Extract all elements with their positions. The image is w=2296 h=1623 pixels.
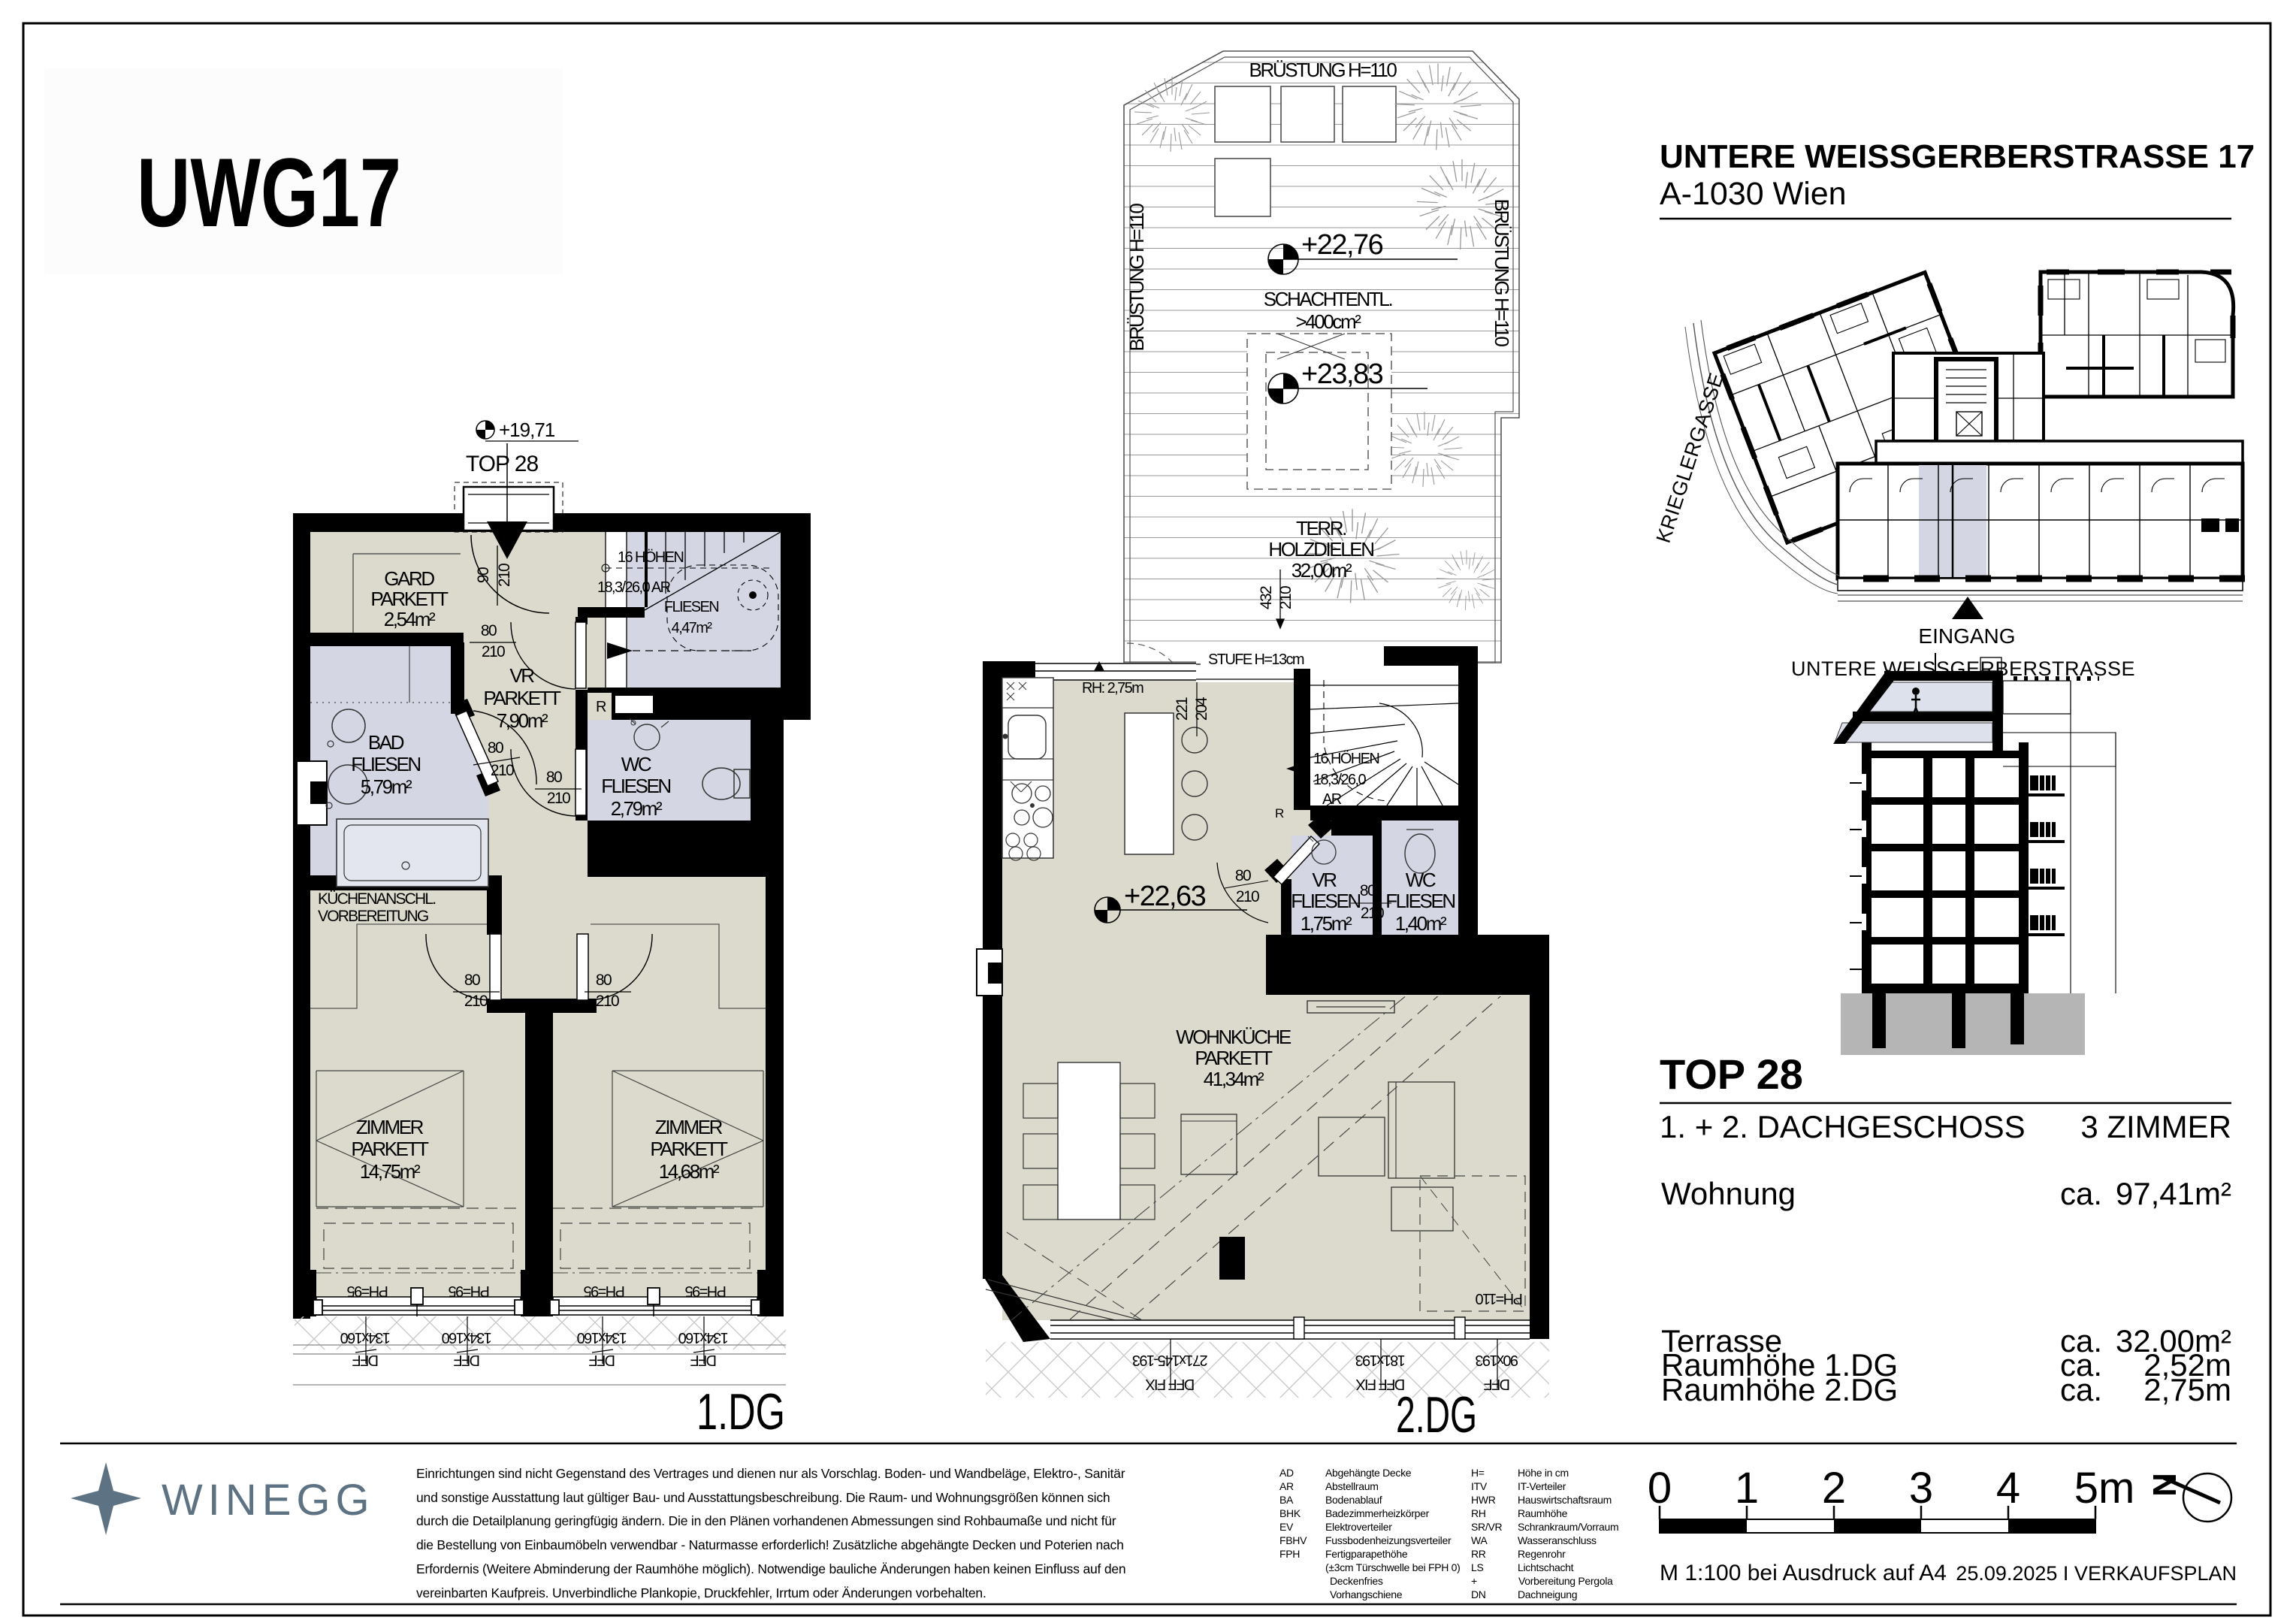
- svg-text:134x160: 134x160: [442, 1329, 492, 1346]
- svg-text:Erfordernis (Weitere Abminderu: Erfordernis (Weitere Abminderung der Rau…: [416, 1561, 1125, 1576]
- svg-text:ZIMMER: ZIMMER: [655, 1116, 723, 1138]
- svg-text:Schrankraum/Vorraum: Schrankraum/Vorraum: [1518, 1521, 1618, 1533]
- svg-text:210: 210: [491, 762, 514, 779]
- svg-text:25.09.2025 I VERKAUFSPLAN: 25.09.2025 I VERKAUFSPLAN: [1956, 1562, 2237, 1585]
- svg-text:WA: WA: [1471, 1534, 1488, 1546]
- svg-text:4: 4: [1996, 1464, 2020, 1513]
- svg-text:SR/VR: SR/VR: [1471, 1521, 1502, 1533]
- svg-text:die Bestellung von Einbaumöbel: die Bestellung von Einbaumöbeln verwendb…: [416, 1537, 1124, 1552]
- svg-text:210: 210: [464, 993, 488, 1010]
- svg-text:>400cm²: >400cm²: [1295, 310, 1361, 333]
- svg-text:PARKETT: PARKETT: [1195, 1047, 1273, 1069]
- svg-text:80: 80: [464, 972, 480, 989]
- svg-text:2: 2: [1822, 1464, 1846, 1513]
- svg-text:+23,83: +23,83: [1301, 358, 1383, 390]
- svg-text:BHK: BHK: [1279, 1507, 1301, 1519]
- svg-text:0: 0: [1648, 1464, 1672, 1513]
- svg-text:FLIESEN: FLIESEN: [1291, 890, 1360, 912]
- svg-text:134x160: 134x160: [340, 1329, 391, 1346]
- svg-text:ZIMMER: ZIMMER: [356, 1116, 424, 1138]
- svg-text:RH: RH: [1471, 1507, 1486, 1519]
- svg-text:BRÜSTUNG H=110: BRÜSTUNG H=110: [1491, 199, 1513, 347]
- svg-text:432: 432: [1258, 586, 1275, 609]
- svg-text:UNTERE WEISSGERBERSTRASSE 17: UNTERE WEISSGERBERSTRASSE 17: [1660, 138, 2255, 175]
- svg-text:5,79m²: 5,79m²: [361, 775, 412, 798]
- svg-text:2,79m²: 2,79m²: [611, 797, 663, 820]
- svg-text:PH=95: PH=95: [449, 1283, 490, 1299]
- svg-text:(±3cm Türschwelle bei FPH 0): (±3cm Türschwelle bei FPH 0): [1325, 1561, 1461, 1573]
- svg-text:Wasseranschluss: Wasseranschluss: [1518, 1534, 1597, 1546]
- svg-text:UWG17: UWG17: [137, 138, 401, 247]
- svg-text:210: 210: [496, 564, 513, 587]
- svg-text:Raumhöhe 2.DG: Raumhöhe 2.DG: [1661, 1372, 1898, 1407]
- svg-text:GARD: GARD: [384, 567, 434, 590]
- svg-text:14,75m²: 14,75m²: [360, 1160, 421, 1183]
- svg-text:EV: EV: [1279, 1521, 1294, 1533]
- svg-text:Hauswirtschaftsraum: Hauswirtschaftsraum: [1518, 1494, 1612, 1506]
- svg-text:ca.: ca.: [2060, 1372, 2102, 1407]
- svg-text:M 1:100 bei Ausdruck auf A4: M 1:100 bei Ausdruck auf A4: [1660, 1561, 1947, 1585]
- svg-text:Raumhöhe: Raumhöhe: [1518, 1507, 1568, 1519]
- svg-text:VR: VR: [1312, 869, 1337, 891]
- svg-text:BRÜSTUNG H=110: BRÜSTUNG H=110: [1249, 59, 1397, 81]
- svg-text:R: R: [1275, 806, 1284, 821]
- svg-text:FPH: FPH: [1279, 1548, 1300, 1560]
- svg-text:210: 210: [482, 643, 505, 660]
- svg-text:DFF: DFF: [454, 1352, 480, 1368]
- svg-text:Abstellraum: Abstellraum: [1325, 1480, 1379, 1492]
- svg-text:271x145-193: 271x145-193: [1132, 1352, 1208, 1368]
- svg-text:1: 1: [1735, 1464, 1759, 1513]
- svg-text:LS: LS: [1471, 1561, 1484, 1573]
- svg-text:Vorbereitung Pergola: Vorbereitung Pergola: [1518, 1575, 1613, 1587]
- svg-text:2,75m: 2,75m: [2143, 1372, 2231, 1407]
- svg-text:14,68m²: 14,68m²: [659, 1160, 720, 1183]
- svg-text:Wohnung: Wohnung: [1661, 1176, 1796, 1211]
- svg-text:90x193: 90x193: [1476, 1352, 1518, 1368]
- svg-text:210: 210: [596, 993, 619, 1010]
- svg-text:210: 210: [547, 790, 570, 807]
- svg-text:SCHACHTENTL.: SCHACHTENTL.: [1264, 288, 1392, 310]
- svg-text:PARKETT: PARKETT: [351, 1138, 429, 1160]
- svg-text:1,75m²: 1,75m²: [1301, 912, 1352, 935]
- svg-text:HOLZDIELEN: HOLZDIELEN: [1268, 538, 1373, 561]
- svg-text:4,47m²: 4,47m²: [672, 620, 713, 636]
- svg-text:Lichtschacht: Lichtschacht: [1518, 1561, 1574, 1573]
- svg-text:VR: VR: [509, 664, 534, 687]
- svg-text:KÜCHENANSCHL.: KÜCHENANSCHL.: [318, 890, 435, 908]
- svg-text:H=: H=: [1471, 1467, 1485, 1479]
- svg-text:STUFE H=13cm: STUFE H=13cm: [1208, 651, 1304, 668]
- svg-text:WOHNKÜCHE: WOHNKÜCHE: [1176, 1026, 1291, 1048]
- svg-text:210: 210: [1236, 888, 1259, 905]
- svg-text:Abgehängte Decke: Abgehängte Decke: [1325, 1467, 1412, 1479]
- svg-text:IT-Verteiler: IT-Verteiler: [1518, 1480, 1566, 1492]
- svg-text:134x160: 134x160: [577, 1329, 627, 1346]
- svg-text:80: 80: [481, 622, 497, 639]
- svg-text:FBHV: FBHV: [1279, 1534, 1307, 1546]
- svg-text:PARKETT: PARKETT: [650, 1138, 728, 1160]
- svg-text:221: 221: [1174, 697, 1191, 721]
- svg-text:PH=110: PH=110: [1476, 1290, 1523, 1307]
- svg-text:Fussbodenheizungsverteiler: Fussbodenheizungsverteiler: [1325, 1534, 1452, 1546]
- svg-text:TOP 28: TOP 28: [466, 452, 539, 476]
- svg-text:DFF FIX: DFF FIX: [1146, 1376, 1195, 1392]
- svg-text:1. + 2. DACHGESCHOSS: 1. + 2. DACHGESCHOSS: [1660, 1109, 2026, 1144]
- svg-text:DN: DN: [1471, 1588, 1486, 1600]
- svg-text:BRÜSTUNG H=110: BRÜSTUNG H=110: [1125, 204, 1148, 352]
- svg-text:N: N: [2146, 1473, 2183, 1497]
- svg-text:41,34m²: 41,34m²: [1204, 1068, 1264, 1090]
- svg-text:RH: 2,75m: RH: 2,75m: [1082, 680, 1143, 697]
- svg-text:vereinbarten Kaufpreis. Unverb: vereinbarten Kaufpreis. Unverbindliche P…: [416, 1585, 986, 1600]
- svg-text:AR: AR: [1322, 791, 1342, 808]
- svg-text:AD: AD: [1279, 1467, 1294, 1479]
- svg-text:FLIESEN: FLIESEN: [601, 775, 670, 797]
- svg-text:97,41m²: 97,41m²: [2116, 1176, 2231, 1211]
- svg-text:WC: WC: [1406, 869, 1436, 891]
- svg-text:FLIESEN: FLIESEN: [664, 599, 718, 615]
- svg-text:1,40m²: 1,40m²: [1395, 912, 1447, 935]
- svg-text:BA: BA: [1279, 1494, 1294, 1506]
- svg-text:WC: WC: [621, 753, 651, 775]
- svg-text:PARKETT: PARKETT: [370, 588, 449, 610]
- svg-text:+: +: [1471, 1575, 1477, 1587]
- svg-text:PH=95: PH=95: [685, 1283, 727, 1299]
- svg-text:134x160: 134x160: [678, 1329, 729, 1346]
- svg-text:Fertigparapethöhe: Fertigparapethöhe: [1325, 1548, 1408, 1560]
- svg-text:HWR: HWR: [1471, 1494, 1496, 1506]
- svg-text:3 ZIMMER: 3 ZIMMER: [2080, 1109, 2231, 1144]
- svg-text:Badezimmerheizkörper: Badezimmerheizkörper: [1325, 1507, 1430, 1519]
- svg-text:204: 204: [1193, 697, 1210, 721]
- svg-text:DFF: DFF: [1484, 1376, 1510, 1392]
- svg-text:Deckenfries: Deckenfries: [1330, 1575, 1383, 1587]
- svg-text:BAD: BAD: [368, 731, 404, 754]
- svg-text:EINGANG: EINGANG: [1918, 624, 2015, 648]
- svg-text:FLIESEN: FLIESEN: [351, 753, 420, 775]
- svg-text:3: 3: [1909, 1464, 1933, 1513]
- svg-text:+22,76: +22,76: [1301, 229, 1383, 261]
- svg-text:80: 80: [1235, 867, 1251, 884]
- svg-text:80: 80: [546, 769, 562, 786]
- svg-text:90: 90: [475, 567, 492, 583]
- svg-text:VORBEREITUNG: VORBEREITUNG: [318, 908, 428, 925]
- svg-text:Bodenablauf: Bodenablauf: [1325, 1494, 1382, 1506]
- svg-text:2,54m²: 2,54m²: [384, 608, 436, 630]
- svg-text:ca.: ca.: [2060, 1176, 2102, 1211]
- svg-text:RR: RR: [1471, 1548, 1486, 1560]
- svg-text:PH=95: PH=95: [347, 1283, 388, 1299]
- svg-text:16 HÖHEN: 16 HÖHEN: [618, 549, 683, 566]
- svg-text:WINEGG: WINEGG: [162, 1476, 375, 1525]
- svg-text:Regenrohr: Regenrohr: [1518, 1548, 1566, 1560]
- svg-text:und sonstige Ausstattung laut: und sonstige Ausstattung laut gültiger B…: [416, 1490, 1110, 1505]
- svg-text:PH=95: PH=95: [584, 1283, 625, 1299]
- svg-text:durch die Detailplanung gering: durch die Detailplanung geringfügig ände…: [416, 1513, 1116, 1528]
- svg-text:80: 80: [488, 739, 503, 757]
- svg-text:Höhe in cm: Höhe in cm: [1518, 1467, 1569, 1479]
- svg-text:TERR.: TERR.: [1296, 517, 1346, 539]
- svg-text:16 HÖHEN: 16 HÖHEN: [1313, 751, 1379, 767]
- svg-text:181x193: 181x193: [1355, 1352, 1406, 1368]
- svg-text:80: 80: [1360, 882, 1376, 899]
- svg-text:5m: 5m: [2074, 1464, 2135, 1513]
- svg-text:32,00m²: 32,00m²: [1291, 559, 1352, 582]
- svg-text:DFF: DFF: [690, 1352, 717, 1368]
- svg-text:Elektroverteiler: Elektroverteiler: [1325, 1521, 1392, 1533]
- svg-text:80: 80: [596, 972, 612, 989]
- svg-text:LÜ: LÜ: [1357, 806, 1372, 821]
- svg-text:R: R: [596, 699, 606, 715]
- svg-text:AR: AR: [1279, 1480, 1294, 1492]
- svg-text:210: 210: [1361, 905, 1384, 922]
- svg-text:Vorhangschiene: Vorhangschiene: [1330, 1588, 1403, 1600]
- svg-text:+22,63: +22,63: [1124, 881, 1206, 912]
- svg-text:1.DG: 1.DG: [696, 1383, 785, 1440]
- svg-text:18,3/26,0: 18,3/26,0: [1313, 772, 1366, 788]
- svg-text:Dachneigung: Dachneigung: [1518, 1588, 1577, 1600]
- svg-text:Einrichtungen sind nicht Gegen: Einrichtungen sind nicht Gegenstand des …: [416, 1466, 1125, 1481]
- svg-text:7,90m²: 7,90m²: [497, 709, 548, 732]
- svg-text:DFF: DFF: [589, 1352, 615, 1368]
- svg-text:PARKETT: PARKETT: [483, 687, 561, 709]
- svg-text:TOP 28: TOP 28: [1660, 1050, 1803, 1098]
- svg-text:A-1030 Wien: A-1030 Wien: [1660, 176, 1847, 212]
- svg-text:DFF: DFF: [352, 1352, 379, 1368]
- svg-text:2.DG: 2.DG: [1396, 1386, 1477, 1443]
- svg-text:+19,71: +19,71: [499, 419, 555, 441]
- svg-text:18,3/26,0 AR: 18,3/26,0 AR: [597, 579, 671, 596]
- svg-text:FLIESEN: FLIESEN: [1385, 890, 1455, 912]
- svg-text:ITV: ITV: [1471, 1480, 1488, 1492]
